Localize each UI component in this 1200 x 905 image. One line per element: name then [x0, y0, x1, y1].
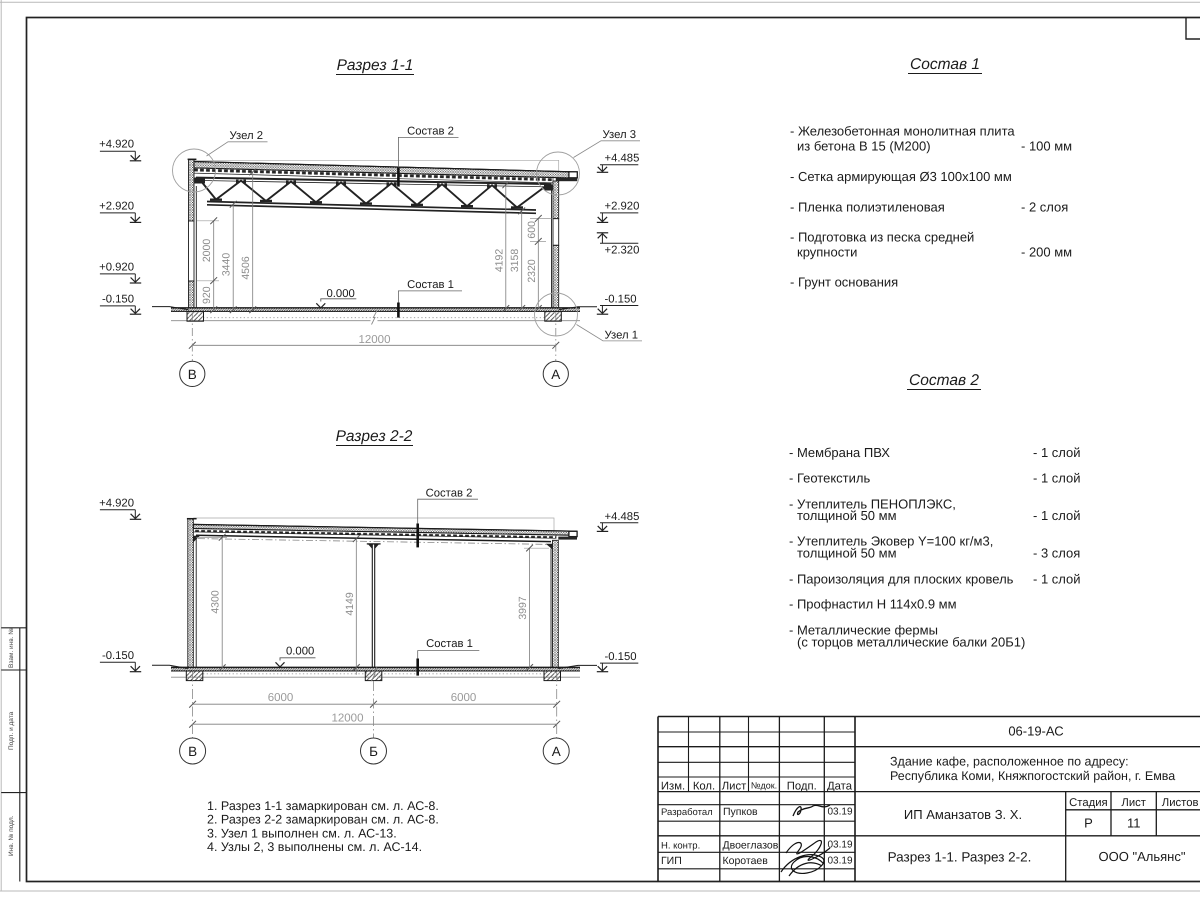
svg-text:- Профнастил Н 114x0.9 мм: - Профнастил Н 114x0.9 мм — [789, 597, 957, 612]
svg-text:+4.920: +4.920 — [99, 139, 134, 151]
svg-text:Здание кафе, расположенное по: Здание кафе, расположенное по адресу: — [890, 755, 1129, 769]
svg-text:Разработал: Разработал — [661, 807, 713, 818]
svg-text:- 1 слой: - 1 слой — [1033, 572, 1081, 587]
svg-text:Подп. и дата: Подп. и дата — [8, 711, 15, 750]
svg-text:4192: 4192 — [493, 249, 505, 273]
svg-text:ГИП: ГИП — [661, 855, 682, 867]
svg-text:из бетона В 15 (М200): из бетона В 15 (М200) — [797, 139, 931, 154]
svg-text:-0.150: -0.150 — [605, 293, 637, 305]
svg-text:06-19-АС: 06-19-АС — [1008, 724, 1063, 739]
svg-text:2. Разрез 2-2 замаркирован см.: 2. Разрез 2-2 замаркирован см. л. АС-8. — [207, 813, 439, 827]
svg-text:Разрез 2-2: Разрез 2-2 — [336, 428, 413, 445]
svg-text:4506: 4506 — [240, 256, 252, 280]
svg-text:4300: 4300 — [210, 590, 222, 614]
svg-text:3997: 3997 — [517, 596, 529, 620]
svg-text:Республика Коми, Княжпогостски: Республика Коми, Княжпогостский район, г… — [890, 769, 1175, 783]
svg-text:- 100 мм: - 100 мм — [1021, 139, 1072, 154]
svg-text:0.000: 0.000 — [286, 646, 314, 658]
svg-text:- 200 мм: - 200 мм — [1021, 245, 1072, 260]
svg-text:Состав 2: Состав 2 — [407, 126, 454, 138]
svg-text:- Железобетонная монолитная п: - Железобетонная монолитная плита — [790, 124, 1015, 139]
svg-text:- 2 слоя: - 2 слоя — [1021, 200, 1068, 215]
svg-text:- Пленка полиэтиленовая: - Пленка полиэтиленовая — [790, 200, 945, 215]
svg-text:2320: 2320 — [526, 259, 538, 283]
svg-text:3440: 3440 — [221, 253, 233, 277]
svg-text:Узел 2: Узел 2 — [230, 130, 264, 142]
svg-text:Узел 3: Узел 3 — [603, 129, 637, 141]
svg-text:Узел 1: Узел 1 — [605, 329, 639, 341]
svg-text:Инв. № подл.: Инв. № подл. — [8, 815, 15, 856]
svg-text:толщиной 50 мм: толщиной 50 мм — [797, 546, 897, 561]
svg-text:3. Узел 1 выполнен см. л. АС-1: 3. Узел 1 выполнен см. л. АС-13. — [207, 826, 397, 840]
svg-text:Состав 2: Состав 2 — [426, 488, 473, 500]
svg-text:Коротаев: Коротаев — [723, 855, 769, 867]
svg-text:- Пароизоляция для плоских кро: - Пароизоляция для плоских кровель — [789, 572, 1014, 587]
svg-text:12000: 12000 — [359, 334, 391, 346]
svg-text:0.000: 0.000 — [327, 288, 355, 300]
svg-text:- Подготовка из песка средней: - Подготовка из песка средней — [790, 230, 974, 245]
svg-text:03.19: 03.19 — [827, 856, 852, 867]
svg-text:Состав 1: Состав 1 — [426, 638, 473, 650]
svg-text:2000: 2000 — [201, 239, 213, 263]
svg-text:-0.150: -0.150 — [102, 650, 134, 662]
svg-text:+2.920: +2.920 — [99, 200, 134, 212]
svg-text:Р: Р — [1084, 816, 1093, 831]
svg-text:Б: Б — [369, 744, 378, 759]
svg-text:- Сетка армирующая Ø3 100x100: - Сетка армирующая Ø3 100x100 мм — [790, 169, 1012, 184]
svg-text:Лист: Лист — [1121, 797, 1146, 809]
svg-text:03.19: 03.19 — [827, 807, 852, 818]
svg-text:крупности: крупности — [797, 245, 857, 260]
svg-text:(с торцов металлические балки: (с торцов металлические балки 20Б1) — [797, 635, 1025, 650]
svg-text:Двоеглазов: Двоеглазов — [723, 840, 779, 852]
svg-text:+4.485: +4.485 — [605, 511, 640, 523]
svg-text:Взам. инв. №: Взам. инв. № — [8, 628, 15, 668]
svg-text:Состав 1: Состав 1 — [407, 279, 454, 291]
svg-text:Лист: Лист — [722, 781, 747, 793]
svg-text:- Грунт основания: - Грунт основания — [790, 275, 898, 290]
svg-text:ООО "Альянс": ООО "Альянс" — [1099, 849, 1186, 864]
svg-text:- Геотекстиль: - Геотекстиль — [789, 471, 870, 486]
svg-text:Состав 1: Состав 1 — [910, 56, 980, 73]
svg-text:- 1 слой: - 1 слой — [1033, 471, 1081, 486]
svg-text:толщиной 50 мм: толщиной 50 мм — [797, 508, 897, 523]
svg-text:А: А — [552, 744, 561, 759]
svg-text:- 1 слой: - 1 слой — [1033, 508, 1081, 523]
svg-text:В: В — [188, 367, 197, 382]
svg-text:Состав 2: Состав 2 — [909, 372, 979, 389]
svg-text:-0.150: -0.150 — [102, 293, 134, 305]
svg-text:Н. контр.: Н. контр. — [661, 841, 700, 852]
svg-text:Разрез 1-1. Разрез 2-2.: Разрез 1-1. Разрез 2-2. — [888, 850, 1032, 865]
svg-text:Стадия: Стадия — [1069, 797, 1108, 809]
svg-text:12000: 12000 — [332, 713, 364, 725]
svg-text:Дата: Дата — [827, 781, 853, 793]
svg-text:№док.: №док. — [751, 781, 777, 791]
svg-text:Кол.: Кол. — [693, 781, 715, 793]
svg-text:+4.485: +4.485 — [605, 152, 640, 164]
svg-text:03.19: 03.19 — [827, 840, 852, 851]
svg-text:3158: 3158 — [509, 249, 521, 273]
svg-text:4. Узлы 2, 3 выполнены см. л.: 4. Узлы 2, 3 выполнены см. л. АС-14. — [207, 840, 422, 854]
svg-text:11: 11 — [1127, 816, 1141, 831]
svg-text:+4.920: +4.920 — [99, 498, 134, 510]
svg-text:6000: 6000 — [451, 692, 477, 704]
svg-text:4149: 4149 — [344, 592, 356, 616]
svg-text:Изм.: Изм. — [661, 781, 685, 793]
svg-text:Пупков: Пупков — [723, 806, 758, 818]
svg-text:- 3 слоя: - 3 слоя — [1033, 546, 1080, 561]
svg-text:Разрез 1-1: Разрез 1-1 — [337, 57, 414, 74]
svg-text:В: В — [188, 744, 197, 759]
svg-text:+2.920: +2.920 — [605, 200, 640, 212]
svg-text:Листов: Листов — [1162, 797, 1199, 809]
svg-text:ИП Аманзатов З. Х.: ИП Аманзатов З. Х. — [904, 807, 1022, 822]
svg-text:- 1 слой: - 1 слой — [1033, 445, 1081, 460]
svg-text:А: А — [551, 367, 560, 382]
svg-text:6000: 6000 — [268, 692, 294, 704]
svg-text:- Мембрана ПВХ: - Мембрана ПВХ — [789, 445, 890, 460]
svg-text:+0.920: +0.920 — [99, 261, 134, 273]
svg-text:920: 920 — [201, 286, 213, 304]
svg-text:600: 600 — [526, 221, 538, 239]
svg-text:Подп.: Подп. — [787, 781, 817, 793]
svg-text:1. Разрез 1-1 замаркирован см.: 1. Разрез 1-1 замаркирован см. л. АС-8. — [207, 799, 439, 813]
svg-text:+2.320: +2.320 — [605, 245, 640, 257]
svg-text:-0.150: -0.150 — [605, 651, 637, 663]
